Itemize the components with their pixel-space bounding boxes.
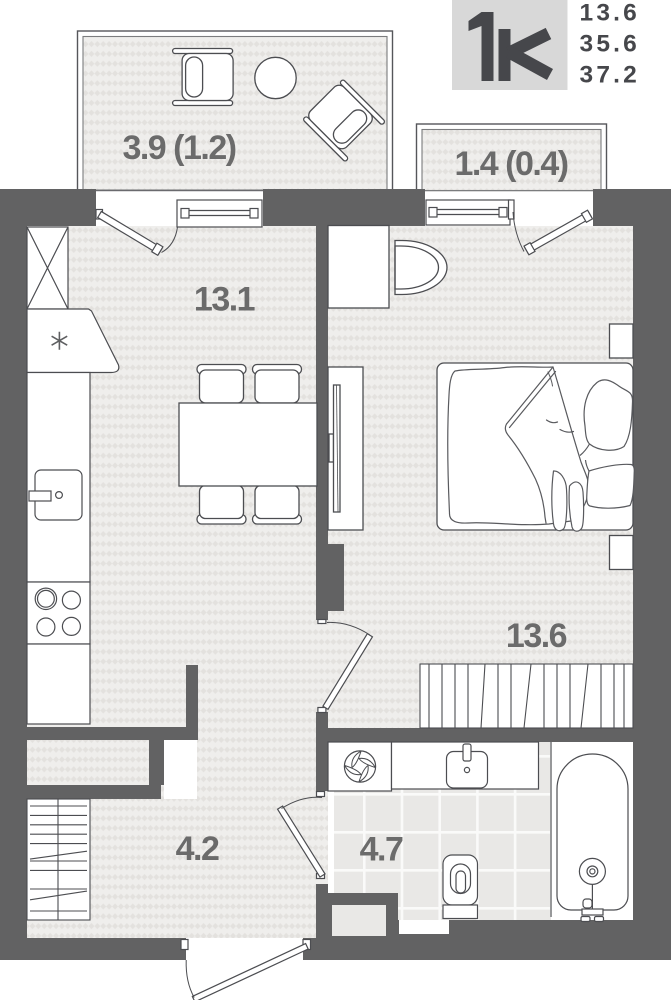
svg-text:4.2: 4.2: [176, 830, 219, 868]
svg-text:1.4 (0.4): 1.4 (0.4): [454, 145, 567, 183]
svg-text:37.2: 37.2: [580, 62, 640, 89]
svg-text:13.6: 13.6: [580, 0, 640, 27]
svg-text:4.7: 4.7: [360, 831, 403, 869]
svg-text:35.6: 35.6: [580, 31, 640, 58]
svg-text:3.9 (1.2): 3.9 (1.2): [122, 129, 235, 167]
svg-text:13.1: 13.1: [194, 281, 255, 319]
svg-text:13.6: 13.6: [506, 617, 567, 655]
